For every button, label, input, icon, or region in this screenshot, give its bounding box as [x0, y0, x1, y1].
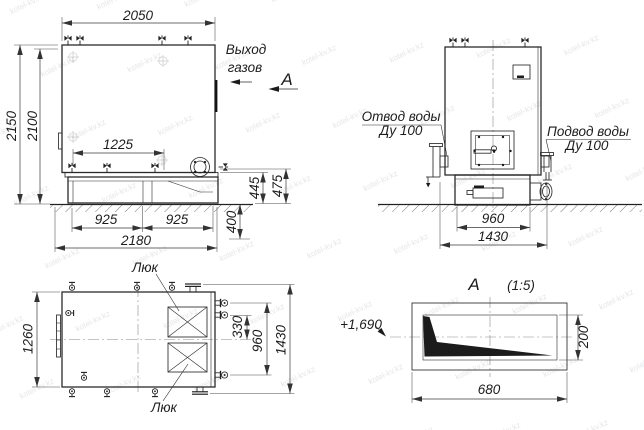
dim-top-width: 2050 — [122, 8, 154, 23]
dim-front-total-width: 1430 — [478, 229, 509, 244]
water-inlet-label-line1: Подвод воды — [547, 124, 629, 139]
detail-title-scale: (1:5) — [507, 278, 535, 293]
dim-foundation: 2180 — [120, 233, 152, 248]
hatch-label-top: Люк — [131, 260, 158, 275]
detail-title-letter: А — [467, 275, 479, 294]
dim-detail-length: 680 — [478, 382, 501, 397]
dim-plan-total: 1430 — [274, 324, 289, 355]
dim-pit-depth: 400 — [224, 210, 239, 233]
view-direction-letter: А — [280, 70, 292, 89]
elevation-mark: +1,690 — [340, 317, 382, 332]
dim-support-left: 925 — [95, 212, 118, 227]
dim-support-right: 925 — [166, 212, 189, 227]
dim-front-base-width: 960 — [482, 211, 505, 226]
boiler-drawing-sheet: kotel-kv.kz kotel-kv.kz — [0, 0, 644, 430]
water-inlet-label-line2: Ду 100 — [564, 138, 609, 153]
dim-stub-offset: 330 — [230, 315, 245, 338]
dim-valve-spacing: 1225 — [103, 137, 134, 152]
hatch-label-bottom: Люк — [150, 400, 177, 415]
drawing-svg: kotel-kv.kz kotel-kv.kz — [0, 0, 644, 430]
dim-base-height-a: 445 — [247, 176, 262, 199]
dim-detail-height: 200 — [576, 325, 591, 349]
ground-hatch — [50, 205, 253, 212]
dim-plan-width: 1260 — [21, 323, 36, 354]
dim-height-a: 2150 — [4, 110, 19, 142]
gas-outlet-label-line2: газов — [228, 60, 262, 75]
dim-base-height-b: 475 — [270, 174, 285, 197]
dim-height-b: 2100 — [25, 110, 40, 142]
water-outlet-label-line1: Отвод воды — [362, 109, 441, 124]
dim-stub-span: 960 — [250, 329, 265, 352]
ground-hatch — [378, 205, 642, 212]
gas-outlet-label-line1: Выход — [226, 42, 267, 57]
